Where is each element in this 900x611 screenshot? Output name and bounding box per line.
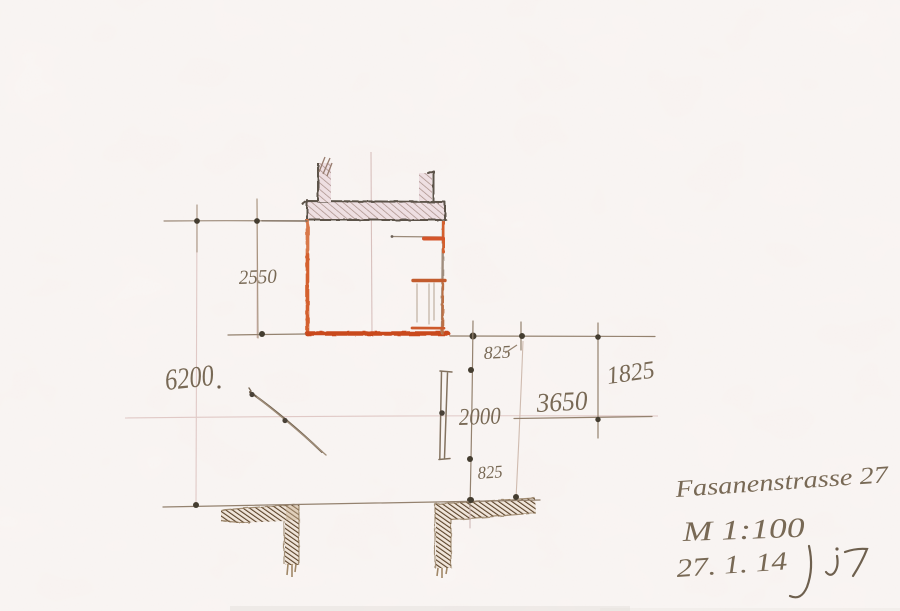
svg-text:3650: 3650 [535, 385, 589, 418]
svg-text:2000: 2000 [458, 404, 501, 431]
svg-text:M 1:100: M 1:100 [681, 513, 805, 548]
svg-text:825: 825 [477, 461, 503, 483]
svg-text:6200: 6200 [163, 359, 215, 397]
svg-text:2550: 2550 [238, 266, 277, 289]
